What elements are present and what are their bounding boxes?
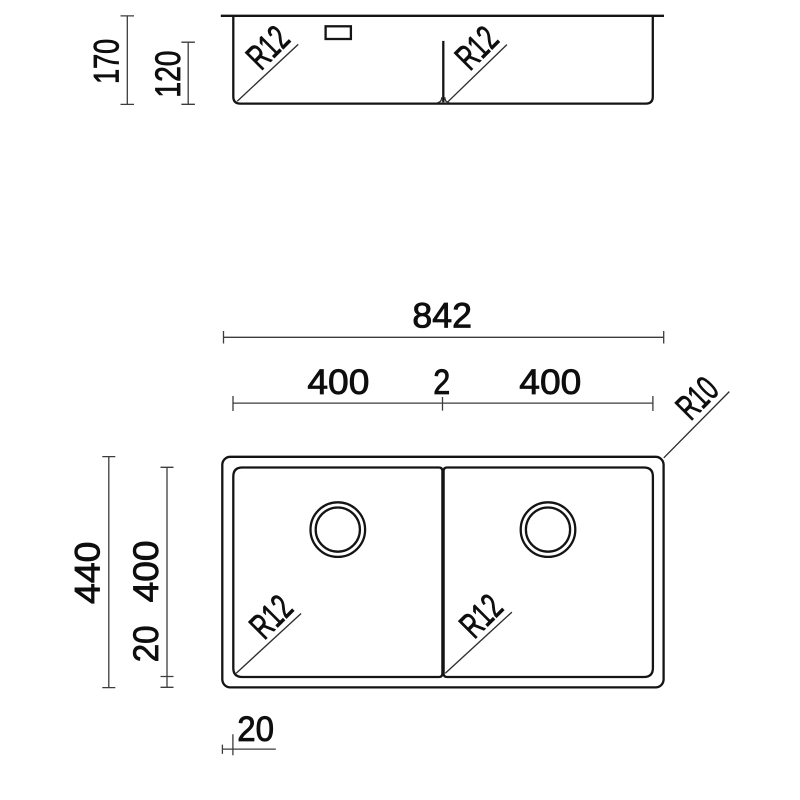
svg-text:2: 2	[433, 362, 450, 402]
svg-text:120: 120	[148, 51, 188, 98]
svg-text:440: 440	[68, 542, 108, 604]
svg-text:170: 170	[86, 39, 126, 84]
svg-text:20: 20	[237, 709, 274, 749]
svg-text:20: 20	[126, 626, 166, 663]
svg-text:842: 842	[412, 296, 472, 336]
svg-text:R12: R12	[452, 587, 511, 646]
svg-text:R12: R12	[238, 18, 297, 77]
svg-text:R10: R10	[668, 369, 726, 427]
svg-text:R12: R12	[242, 587, 301, 646]
svg-text:400: 400	[519, 362, 581, 402]
svg-text:R12: R12	[447, 18, 506, 77]
svg-text:400: 400	[126, 540, 166, 602]
svg-text:400: 400	[307, 362, 369, 402]
